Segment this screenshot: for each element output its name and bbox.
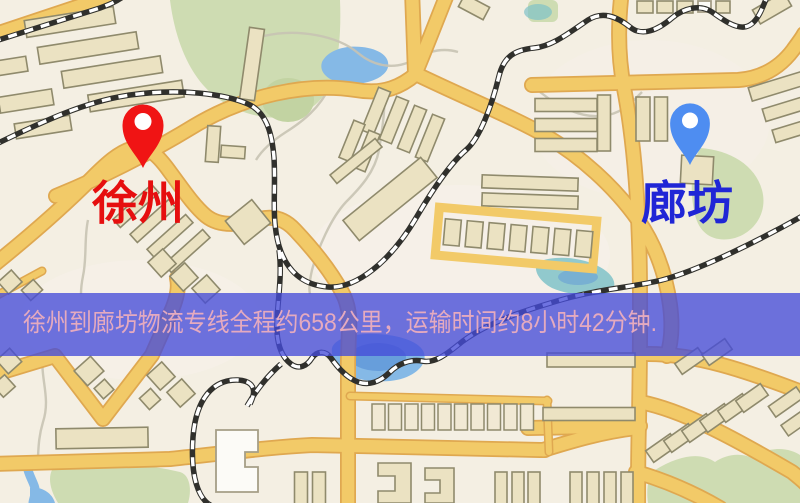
langfang-label: 廊坊 xyxy=(641,178,733,229)
route-info-text: 徐州到廊坊物流专线全程约658公里，运输时间约8小时42分钟. xyxy=(23,309,657,337)
xuzhou-label: 徐州 xyxy=(91,178,184,229)
map-canvas: 徐州 廊坊 徐州到廊坊物流专线全程约658公里，运输时间约8小时42分钟. xyxy=(0,0,800,503)
langfang-pin-hole xyxy=(682,113,698,129)
xuzhou-pin-hole xyxy=(135,113,152,130)
logistics-route-map: 徐州 廊坊 徐州到廊坊物流专线全程约658公里，运输时间约8小时42分钟. xyxy=(0,0,800,503)
